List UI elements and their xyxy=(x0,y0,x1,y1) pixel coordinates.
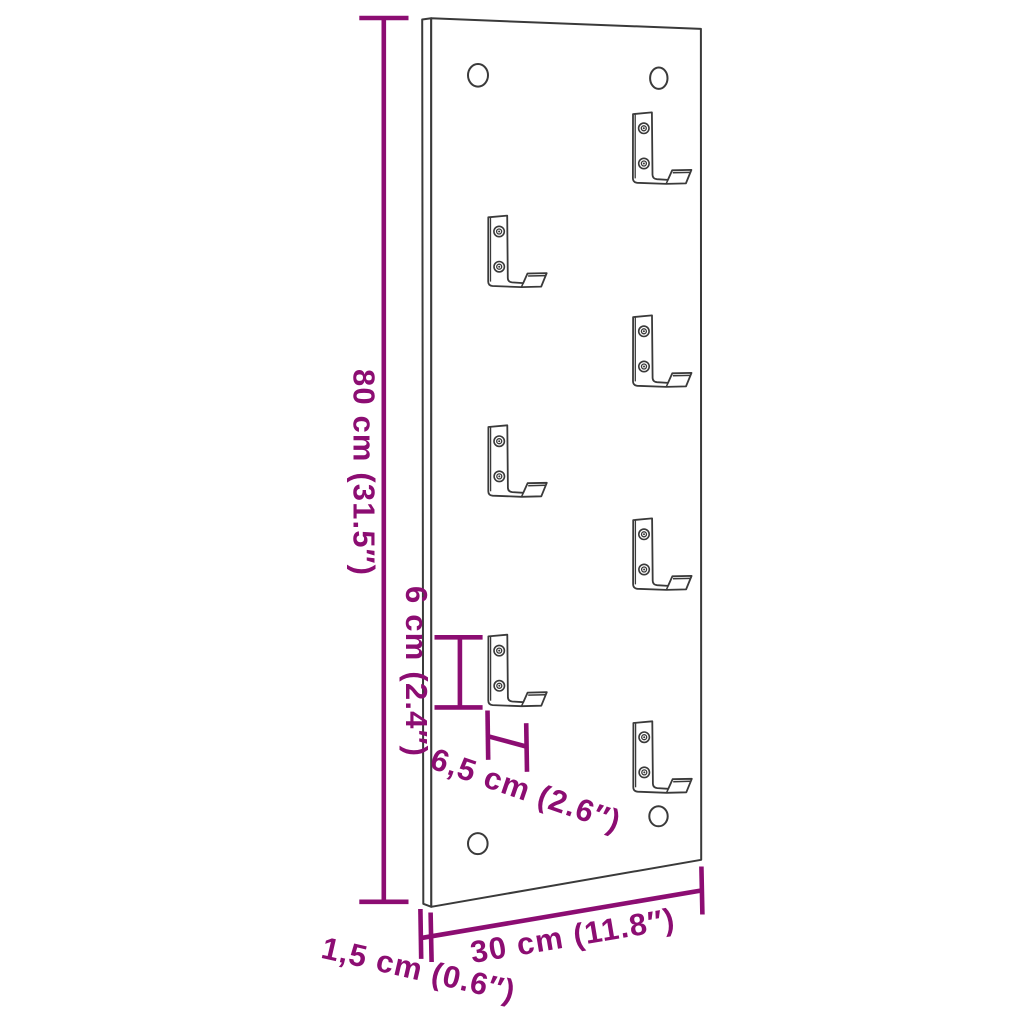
svg-text:80 cm (31.5″): 80 cm (31.5″) xyxy=(347,369,382,575)
svg-text:6 cm (2.4″): 6 cm (2.4″) xyxy=(399,586,434,756)
